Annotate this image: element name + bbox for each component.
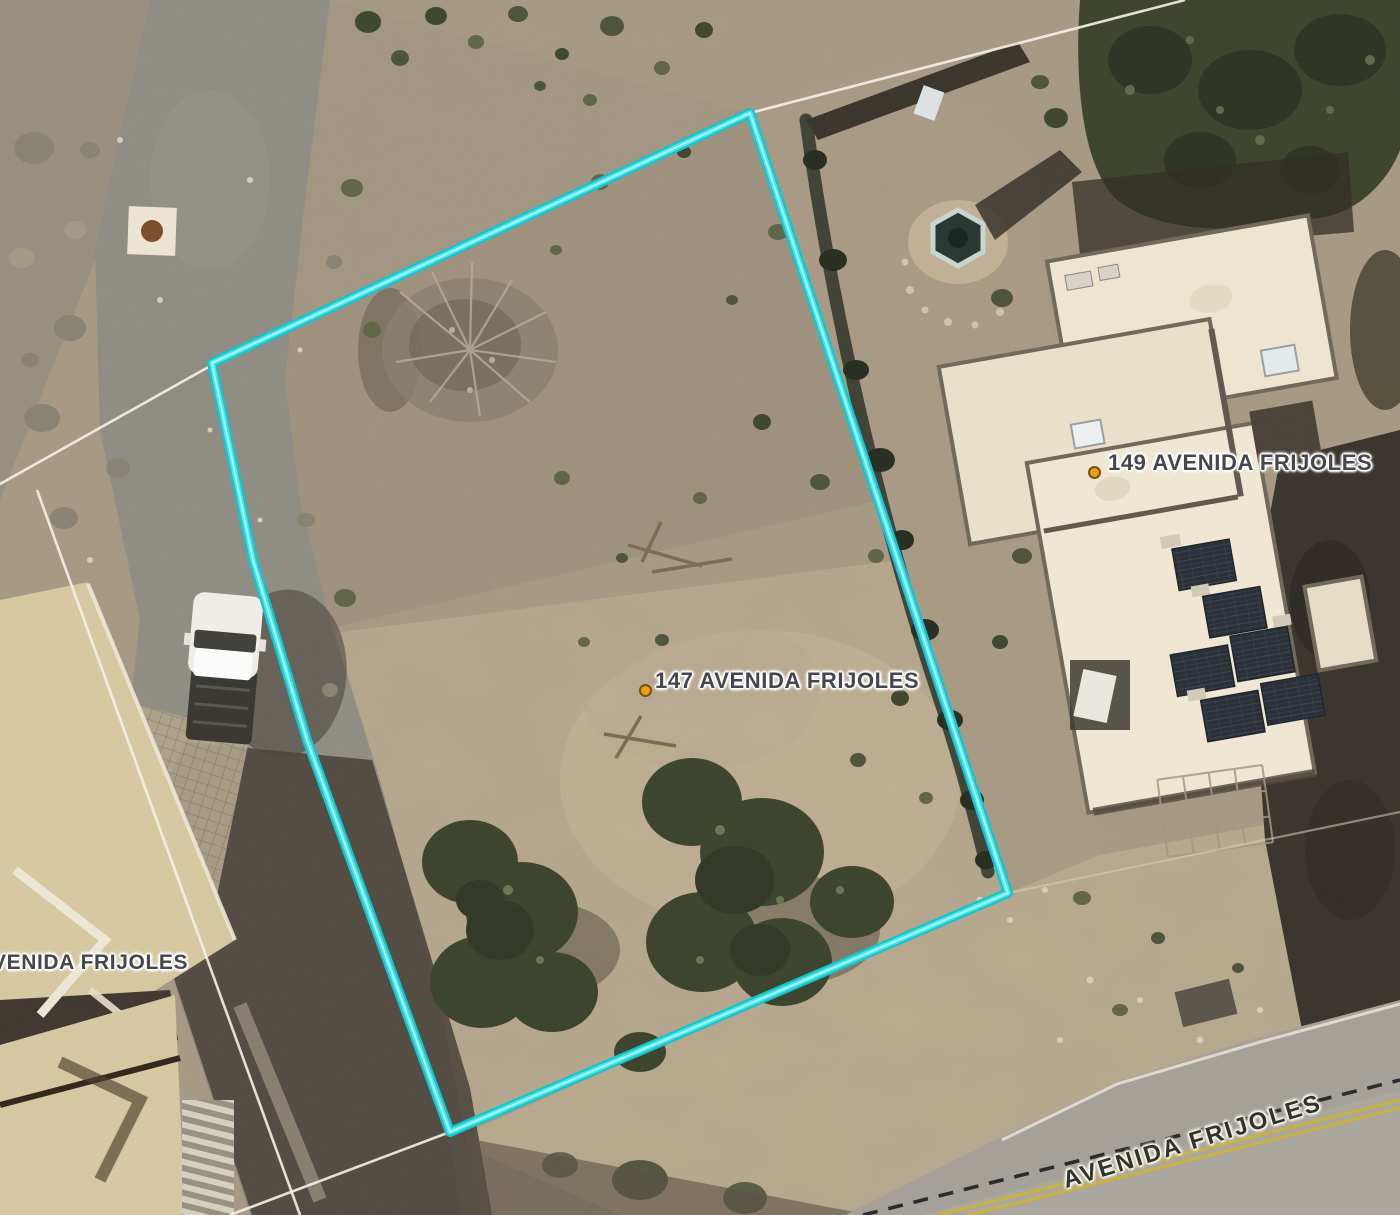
aerial-map-viewport[interactable]: 147 AVENIDA FRIJOLES 149 AVENIDA FRIJOLE…	[0, 0, 1400, 1215]
parcel-label-left-partial: VENIDA FRIJOLES	[0, 951, 188, 975]
parcel-label-149: 149 AVENIDA FRIJOLES	[1108, 450, 1372, 476]
parcel-label-147: 147 AVENIDA FRIJOLES	[655, 668, 919, 694]
image-grain	[0, 0, 1400, 1215]
parcel-marker-dot-149[interactable]	[1088, 466, 1101, 479]
parcel-marker-dot-147[interactable]	[639, 684, 652, 697]
aerial-imagery	[0, 0, 1400, 1215]
